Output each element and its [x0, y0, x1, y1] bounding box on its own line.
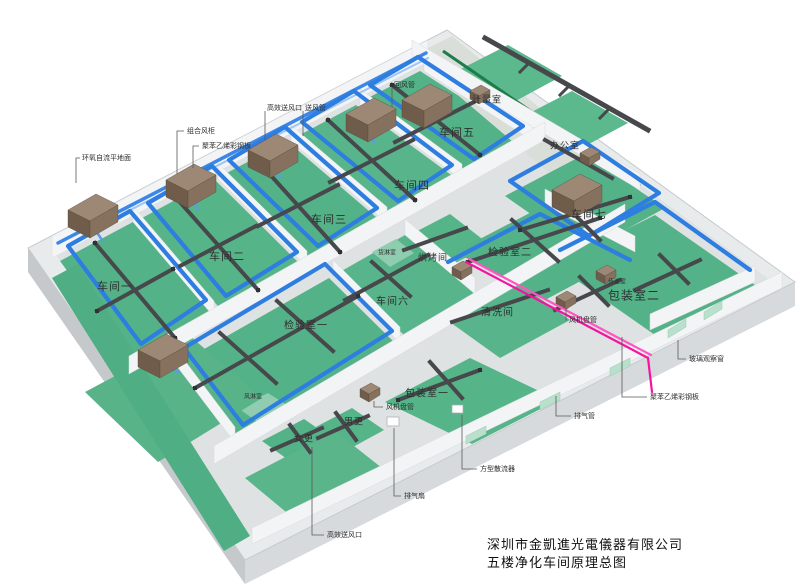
exhaust-fan-box	[387, 417, 399, 426]
company-name: 深圳市金凱進光電儀器有限公司	[487, 534, 683, 553]
drawing-title: 五楼净化车间原理总图	[487, 552, 627, 571]
cleanroom-diagram-page: 环氧自流平地面组合风柜聚苯乙烯彩钢板高效送风口送风管回风管风机盘管风机盘管排气管…	[0, 0, 800, 587]
square-diffuser-box	[452, 405, 463, 413]
cleanroom-axonometric-diagram	[0, 0, 800, 587]
